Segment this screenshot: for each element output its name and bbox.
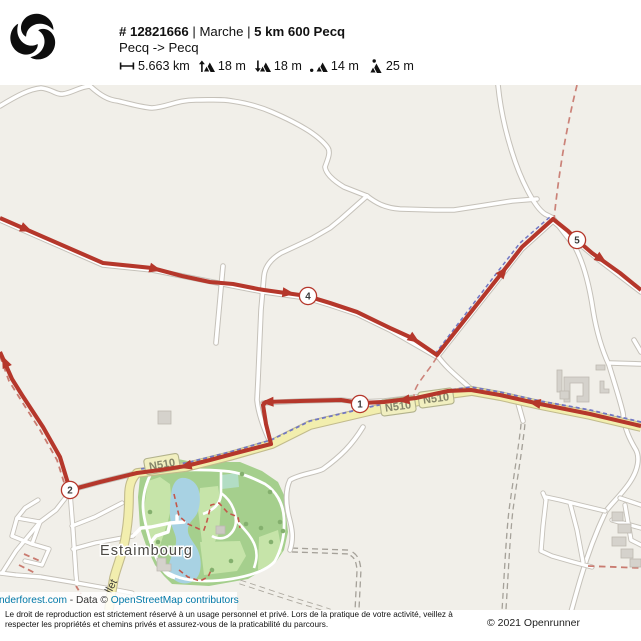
svg-text:5: 5: [574, 235, 580, 246]
svg-text:1: 1: [357, 399, 363, 410]
svg-text:4: 4: [305, 291, 311, 302]
svg-text:Estaimbourg: Estaimbourg: [100, 543, 193, 559]
svg-text:2: 2: [67, 485, 73, 496]
